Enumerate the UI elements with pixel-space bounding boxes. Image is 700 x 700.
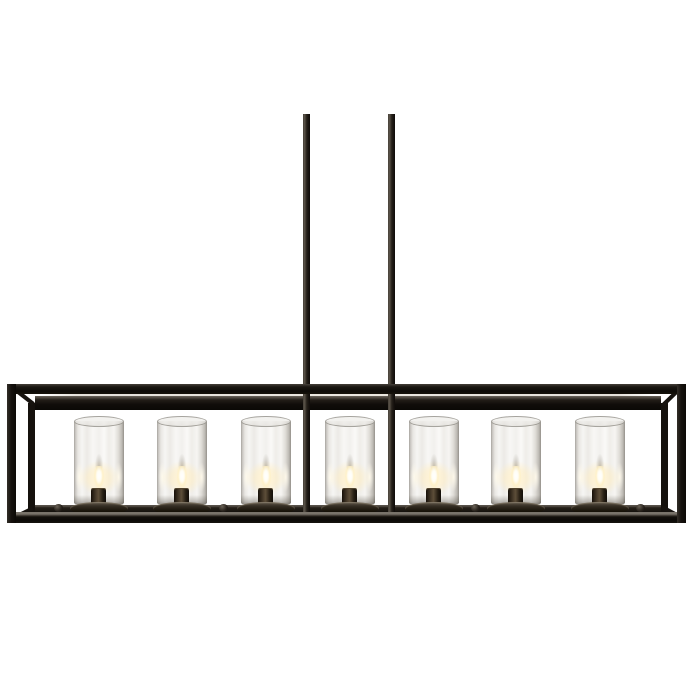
bulb-flame-core [177, 466, 187, 488]
frame-front-top-rail [7, 384, 686, 394]
glass-top-rim [491, 416, 541, 427]
glass-top-rim [325, 416, 375, 427]
frame-front-bottom-rail [7, 512, 686, 523]
linear-chandelier-fixture [0, 0, 700, 700]
frame-back-right-post [661, 403, 668, 512]
bulb-flame-core [94, 466, 104, 488]
finial-knob [471, 504, 480, 512]
frame-front-left-post [7, 384, 16, 523]
frame-back-top-rail [35, 396, 661, 410]
candle-light-unit [152, 412, 212, 516]
product-image-canvas [0, 0, 700, 700]
candle-light-unit [236, 412, 296, 516]
bulb-flame-core [261, 466, 271, 488]
glass-top-rim [157, 416, 207, 427]
finial-knob [636, 504, 645, 512]
candle-light-unit [404, 412, 464, 516]
finial-knob [54, 504, 63, 512]
bulb-flame-core [511, 466, 521, 488]
bulb-flame-core [595, 466, 605, 488]
glass-top-rim [241, 416, 291, 427]
candle-light-unit [486, 412, 546, 516]
candle-light-unit [69, 412, 129, 516]
candle-light-unit [570, 412, 630, 516]
frame-front-right-post [677, 384, 686, 523]
bulb-flame-core [429, 466, 439, 488]
candle-light-unit [320, 412, 380, 516]
finial-knob [219, 504, 228, 512]
hanging-rod [388, 114, 395, 513]
glass-top-rim [409, 416, 459, 427]
frame-back-left-post [28, 403, 35, 512]
bulb-flame-core [345, 466, 355, 488]
hanging-rod [303, 114, 310, 513]
glass-top-rim [575, 416, 625, 427]
glass-top-rim [74, 416, 124, 427]
